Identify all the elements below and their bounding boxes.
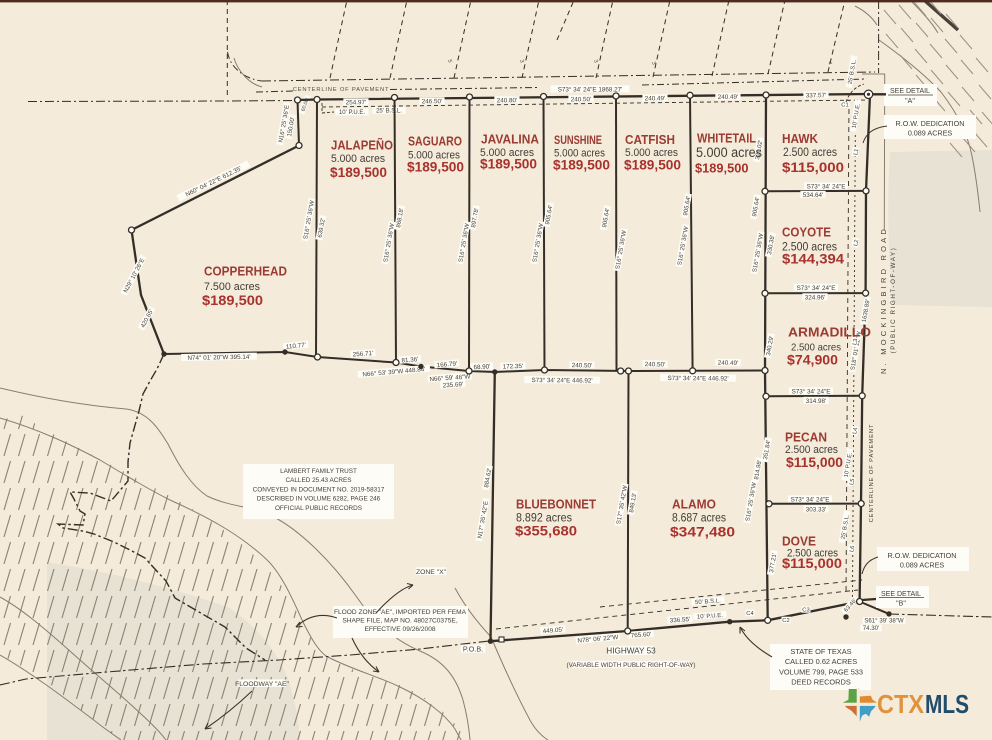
svg-text:COPPERHEAD: COPPERHEAD (204, 265, 287, 279)
svg-text:$189,500: $189,500 (553, 157, 610, 173)
svg-text:256.71': 256.71' (352, 350, 373, 358)
svg-text:$189,500: $189,500 (695, 161, 749, 176)
svg-text:254.97': 254.97' (346, 99, 367, 106)
svg-text:240.49': 240.49' (718, 360, 739, 367)
svg-text:ALAMO: ALAMO (672, 497, 716, 512)
svg-text:S73° 34' 24"E 1868.27': S73° 34' 24"E 1868.27' (558, 85, 623, 93)
svg-text:S73° 34' 24"E: S73° 34' 24"E (791, 495, 830, 503)
svg-text:SHAPE FILE, MAP NO. 48027C0375: SHAPE FILE, MAP NO. 48027C0375E, (342, 618, 457, 625)
svg-text:CENTERLINE OF PAVEMENT: CENTERLINE OF PAVEMENT (293, 87, 390, 93)
svg-text:$115,000: $115,000 (782, 556, 842, 571)
svg-text:CENTERLINE OF PAVEMENT: CENTERLINE OF PAVEMENT (869, 424, 875, 523)
svg-text:240.80': 240.80' (497, 97, 518, 104)
svg-text:EFFECTIVE 09/26/2008: EFFECTIVE 09/26/2008 (364, 626, 435, 633)
svg-text:L1: L1 (853, 148, 860, 155)
svg-text:172.35': 172.35' (503, 363, 524, 371)
svg-text:S73° 34' 24"E: S73° 34' 24"E (792, 387, 831, 395)
svg-text:C2: C2 (782, 618, 789, 624)
svg-text:"A": "A" (905, 98, 915, 105)
svg-text:L6: L6 (849, 545, 856, 552)
svg-text:JAVALINA: JAVALINA (481, 132, 540, 147)
svg-text:FLOODWAY "AE": FLOODWAY "AE" (235, 681, 289, 688)
svg-text:81.36': 81.36' (401, 356, 419, 364)
svg-text:S73° 34' 24"E: S73° 34' 24"E (807, 182, 846, 190)
svg-text:DESCRIBED IN VOLUME 6282, PAGE: DESCRIBED IN VOLUME 6282, PAGE 246 (257, 496, 381, 503)
svg-text:S73° 34' 24"E 446.92': S73° 34' 24"E 446.92' (667, 374, 728, 383)
svg-text:$115,000: $115,000 (786, 455, 843, 470)
svg-text:DOVE: DOVE (782, 535, 816, 549)
svg-text:JALAPEÑO: JALAPEÑO (331, 138, 393, 153)
svg-text:240.50': 240.50' (571, 96, 592, 103)
svg-text:"B": "B" (896, 601, 906, 608)
svg-text:STATE OF TEXAS: STATE OF TEXAS (790, 647, 851, 656)
svg-text:C1: C1 (841, 103, 848, 109)
svg-text:VOLUME 799, PAGE 533: VOLUME 799, PAGE 533 (779, 667, 863, 676)
svg-text:(VARIABLE WIDTH PUBLIC RIGHT-O: (VARIABLE WIDTH PUBLIC RIGHT-OF-WAY) (567, 662, 696, 669)
svg-text:534.64': 534.64' (803, 192, 823, 199)
svg-text:S73° 34' 24"E 446.92': S73° 34' 24"E 446.92' (531, 376, 592, 385)
svg-text:ZONE "X": ZONE "X" (416, 569, 447, 576)
svg-text:0.089 ACRES: 0.089 ACRES (900, 561, 945, 570)
svg-text:336.55': 336.55' (669, 616, 690, 624)
svg-text:$189,500: $189,500 (330, 164, 387, 180)
svg-text:314.98': 314.98' (806, 398, 826, 405)
svg-text:74.30': 74.30' (863, 625, 879, 632)
svg-text:240.49': 240.49' (718, 94, 739, 101)
svg-text:MLS: MLS (925, 689, 969, 719)
svg-text:SEE DETAIL: SEE DETAIL (890, 88, 930, 95)
svg-text:N. MOCKINGBIRD ROAD: N. MOCKINGBIRD ROAD (879, 226, 888, 374)
svg-text:L5: L5 (849, 478, 856, 485)
svg-text:WHITETAIL: WHITETAIL (697, 132, 756, 146)
svg-text:$347,480: $347,480 (670, 524, 735, 540)
svg-text:ARMADILLO: ARMADILLO (788, 326, 871, 340)
svg-text:CATFISH: CATFISH (625, 132, 675, 147)
svg-text:68.90': 68.90' (473, 363, 490, 371)
svg-text:240.50': 240.50' (572, 362, 593, 369)
svg-text:OFFICIAL PUBLIC RECORDS: OFFICIAL PUBLIC RECORDS (275, 505, 362, 512)
svg-text:(PUBLIC RIGHT-OF-WAY): (PUBLIC RIGHT-OF-WAY) (890, 247, 897, 354)
svg-text:L2: L2 (853, 239, 860, 246)
svg-text:CTX: CTX (877, 689, 925, 719)
svg-text:$115,000: $115,000 (782, 160, 844, 175)
svg-text:C4: C4 (746, 611, 754, 617)
svg-text:$144,394: $144,394 (782, 251, 844, 267)
svg-text:P.O.B.: P.O.B. (463, 644, 483, 653)
svg-text:10' P.U.E.: 10' P.U.E. (339, 110, 365, 116)
svg-text:S61° 39' 38"W: S61° 39' 38"W (864, 618, 904, 625)
svg-text:N74° 01' 20"W 395.14': N74° 01' 20"W 395.14' (187, 353, 250, 362)
svg-text:SEE DETAIL: SEE DETAIL (881, 591, 921, 598)
svg-text:2.500 acres: 2.500 acres (783, 145, 837, 159)
svg-text:$74,900: $74,900 (787, 352, 838, 368)
svg-text:CONVEYED IN DOCUMENT NO. 2019-: CONVEYED IN DOCUMENT NO. 2019-58317 (253, 486, 385, 493)
svg-text:CALLED 0.62 ACRES: CALLED 0.62 ACRES (785, 657, 857, 666)
svg-text:R.O.W. DEDICATION: R.O.W. DEDICATION (896, 119, 965, 128)
svg-text:CALLED 25.43 ACRES: CALLED 25.43 ACRES (285, 477, 351, 484)
svg-text:COYOTE: COYOTE (782, 226, 831, 240)
svg-text:$189,500: $189,500 (624, 157, 681, 173)
svg-text:765.60': 765.60' (630, 631, 651, 639)
svg-text:FLOOD ZONE "AE", IMPORTED PER: FLOOD ZONE "AE", IMPORTED PER FEMA (334, 609, 467, 616)
svg-text:$189,500: $189,500 (202, 292, 263, 308)
svg-text:S73° 34' 24"E: S73° 34' 24"E (797, 284, 836, 292)
svg-text:LAMBERT FAMILY TRUST: LAMBERT FAMILY TRUST (280, 468, 357, 475)
svg-text:HAWK: HAWK (782, 132, 818, 146)
svg-text:R.O.W. DEDICATION: R.O.W. DEDICATION (888, 551, 957, 560)
svg-text:$189,500: $189,500 (407, 159, 464, 175)
svg-text:235.69': 235.69' (442, 381, 463, 389)
svg-text:SAGUARO: SAGUARO (408, 134, 462, 149)
svg-text:SUNSHINE: SUNSHINE (554, 135, 602, 147)
svg-text:303.33': 303.33' (806, 506, 826, 513)
svg-text:$189,500: $189,500 (480, 156, 537, 172)
svg-text:324.96': 324.96' (805, 294, 825, 301)
svg-text:25' B.S.L.: 25' B.S.L. (376, 109, 402, 115)
svg-text:246.50': 246.50' (422, 98, 443, 105)
svg-text:240.50': 240.50' (645, 361, 666, 368)
svg-text:BLUEBONNET: BLUEBONNET (516, 497, 596, 512)
svg-text:240.49': 240.49' (645, 95, 666, 102)
svg-text:0.089 ACRES: 0.089 ACRES (908, 129, 953, 138)
svg-text:PECAN: PECAN (785, 431, 827, 445)
svg-text:C3: C3 (802, 608, 809, 614)
svg-text:DEED RECORDS: DEED RECORDS (791, 678, 851, 687)
svg-text:5.000 acres: 5.000 acres (696, 145, 762, 160)
svg-text:HIGHWAY 53: HIGHWAY 53 (606, 647, 656, 656)
svg-text:$355,680: $355,680 (515, 523, 577, 539)
svg-text:337.57': 337.57' (806, 92, 827, 99)
